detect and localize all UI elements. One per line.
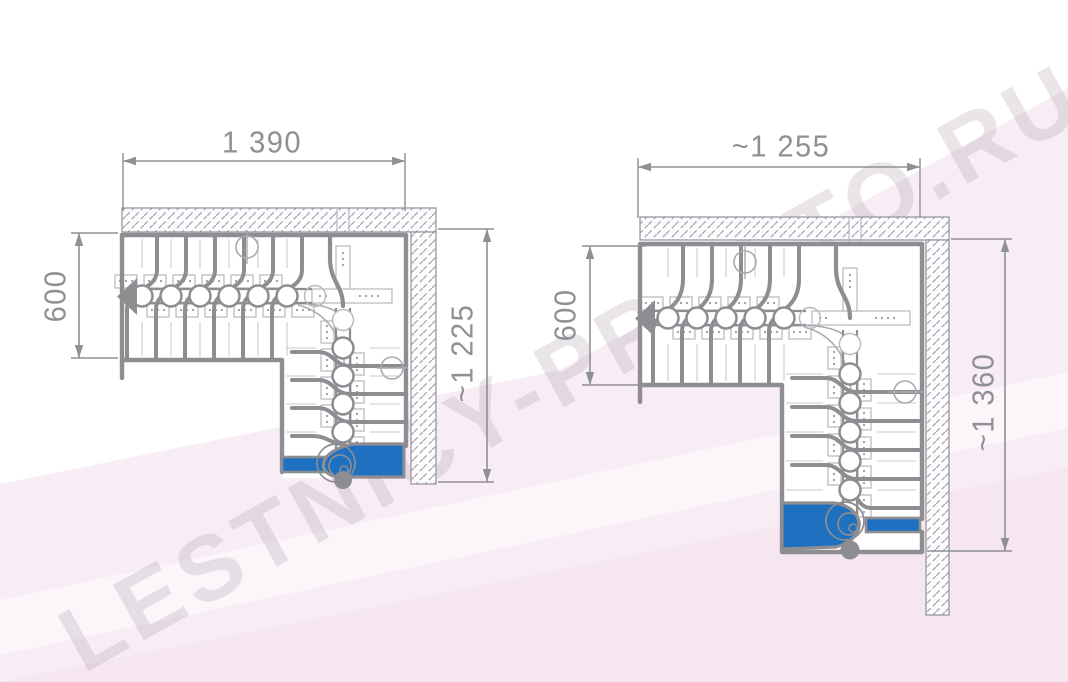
fastener-dot	[833, 386, 835, 388]
module-circle	[190, 286, 211, 307]
fastener-dot	[264, 280, 266, 282]
fastener-dot	[326, 337, 328, 339]
dimension-right-arrow-top	[1001, 239, 1009, 252]
fastener-dot	[776, 331, 778, 333]
fastener-dot	[151, 309, 153, 311]
fastener-dot	[680, 302, 682, 304]
module-circle	[840, 451, 861, 472]
module-circle	[333, 394, 354, 415]
fastener-dot	[833, 421, 835, 423]
dim-label-right-plan-height: ~1 360	[968, 353, 999, 451]
fastener-dot	[365, 295, 367, 297]
module-circle-light	[333, 310, 354, 331]
fastener-dot	[863, 412, 865, 414]
fastener-dot	[747, 331, 749, 333]
fastener-dot	[326, 415, 328, 417]
fastener-dot	[319, 295, 321, 297]
fastener-dot	[250, 309, 252, 311]
dimension-right-arrow-bottom	[1001, 538, 1009, 551]
fastener-dot	[677, 331, 679, 333]
dimension-right-arrow-bottom	[483, 469, 491, 482]
fastener-dot	[863, 470, 865, 472]
dimension-top-arrow-left	[638, 163, 651, 171]
fastener-dot	[131, 280, 133, 282]
module-circle	[687, 308, 708, 329]
fastener-dot	[715, 302, 717, 304]
fastener-dot	[125, 280, 127, 282]
newel-post	[334, 471, 352, 489]
fastener-dot	[833, 473, 835, 475]
fastener-dot	[267, 309, 269, 311]
wall-top-hatch	[122, 208, 436, 232]
fastener-dot	[881, 317, 883, 319]
fastener-dot	[160, 280, 162, 282]
fastener-dot	[686, 302, 688, 304]
fastener-dot	[764, 331, 766, 333]
fastener-dot	[326, 331, 328, 333]
fastener-dot	[326, 325, 328, 327]
module-circle	[161, 286, 182, 307]
fastener-dot	[356, 357, 358, 359]
screenshot-root: LESTNICY-PROSTO.RU 1 390 600 ~1 225 ~1 2…	[0, 0, 1068, 682]
fastener-dot	[189, 280, 191, 282]
fastener-dot	[326, 421, 328, 423]
module-circle	[277, 286, 298, 307]
dimension-left-arrow-bottom	[75, 345, 83, 358]
module-circle	[658, 308, 679, 329]
dimension-left-arrow-bottom	[586, 372, 594, 385]
module-circle	[840, 480, 861, 501]
fastener-dot	[238, 309, 240, 311]
module-circle	[840, 422, 861, 443]
dim-label-left-plan-height: ~1 225	[447, 304, 478, 402]
module-circle	[248, 286, 269, 307]
fastener-dot	[689, 331, 691, 333]
module-circle	[716, 308, 737, 329]
fastener-dot	[863, 453, 865, 455]
fastener-dot	[302, 309, 304, 311]
fastener-dot	[377, 295, 379, 297]
fastener-dot	[887, 317, 889, 319]
fastener-dot	[833, 450, 835, 452]
fastener-dot	[805, 331, 807, 333]
dim-label-right-plan-width: ~1 255	[732, 131, 830, 162]
fastener-dot	[833, 351, 835, 353]
fastener-dot	[326, 393, 328, 395]
staircase-plan-right	[582, 158, 1012, 615]
wall-top-hatch	[640, 217, 949, 240]
wall-right-hatch	[411, 232, 436, 484]
fastener-dot	[279, 309, 281, 311]
fastener-dot	[356, 397, 358, 399]
fastener-dot	[863, 441, 865, 443]
fastener-dot	[833, 415, 835, 417]
fastener-dot	[276, 280, 278, 282]
dimension-right-arrow-top	[483, 229, 491, 242]
fastener-dot	[206, 280, 208, 282]
fastener-dot	[875, 317, 877, 319]
fastener-dot	[863, 482, 865, 484]
staircase-plans-drawing	[0, 0, 1068, 682]
fastener-dot	[218, 280, 220, 282]
module-circle	[840, 393, 861, 414]
fastener-dot	[825, 317, 827, 319]
fastener-dot	[833, 357, 835, 359]
module-circle	[774, 308, 795, 329]
fastener-dot	[163, 309, 165, 311]
module-circle-light	[840, 334, 861, 355]
fastener-dot	[773, 302, 775, 304]
module-circle	[219, 286, 240, 307]
fastener-dot	[863, 499, 865, 501]
fastener-dot	[180, 309, 182, 311]
dimension-left-arrow-top	[586, 246, 594, 259]
fastener-dot	[738, 302, 740, 304]
newel-post	[841, 541, 860, 560]
fastener-dot	[326, 359, 328, 361]
fastener-dot	[356, 413, 358, 415]
fastener-dot	[342, 258, 344, 260]
dimension-top-arrow-left	[123, 157, 136, 165]
fastener-dot	[247, 280, 249, 282]
fastener-dot	[718, 331, 720, 333]
fastener-dot	[799, 331, 801, 333]
fastener-dot	[863, 395, 865, 397]
module-circle	[840, 364, 861, 385]
fastener-dot	[709, 302, 711, 304]
fastener-dot	[849, 286, 851, 288]
dim-label-left-plan-width: 1 390	[222, 127, 302, 158]
stair-boundary	[122, 360, 282, 472]
fastener-dot	[359, 295, 361, 297]
dimension-top-arrow-right	[392, 157, 405, 165]
fastener-dot	[371, 295, 373, 297]
module-circle	[333, 422, 354, 443]
dimension-top-arrow-right	[907, 163, 920, 171]
fastener-dot	[863, 383, 865, 385]
fastener-dot	[833, 392, 835, 394]
fastener-dot	[235, 280, 237, 282]
fastener-dot	[326, 387, 328, 389]
fastener-dot	[326, 365, 328, 367]
fastener-dot	[192, 309, 194, 311]
fastener-dot	[148, 280, 150, 282]
fastener-dot	[833, 479, 835, 481]
module-circle	[333, 366, 354, 387]
fastener-dot	[356, 385, 358, 387]
fastener-dot	[645, 302, 647, 304]
fastener-dot	[849, 280, 851, 282]
fastener-dot	[893, 317, 895, 319]
fastener-dot	[833, 363, 835, 365]
dimension-left-arrow-top	[75, 233, 83, 246]
fastener-dot	[833, 444, 835, 446]
wall-right-hatch	[926, 240, 949, 615]
fastener-dot	[296, 309, 298, 311]
fastener-dot	[342, 252, 344, 254]
fastener-dot	[342, 264, 344, 266]
fastener-dot	[767, 302, 769, 304]
dim-label-left-plan-depth: 600	[40, 270, 71, 323]
staircase-plan-left	[71, 153, 494, 489]
fastener-dot	[849, 274, 851, 276]
fastener-dot	[356, 369, 358, 371]
dim-label-right-plan-depth: 600	[550, 289, 581, 342]
module-circle	[745, 308, 766, 329]
first-step-highlight	[323, 444, 404, 477]
fastener-dot	[793, 331, 795, 333]
fastener-dot	[356, 425, 358, 427]
fastener-dot	[744, 302, 746, 304]
fastener-dot	[177, 280, 179, 282]
fastener-dot	[706, 331, 708, 333]
module-circle	[333, 338, 354, 359]
fastener-dot	[735, 331, 737, 333]
first-step-strip	[866, 518, 920, 532]
fastener-dot	[221, 309, 223, 311]
fastener-dot	[657, 302, 659, 304]
fastener-dot	[863, 511, 865, 513]
fastener-dot	[209, 309, 211, 311]
fastener-dot	[863, 424, 865, 426]
